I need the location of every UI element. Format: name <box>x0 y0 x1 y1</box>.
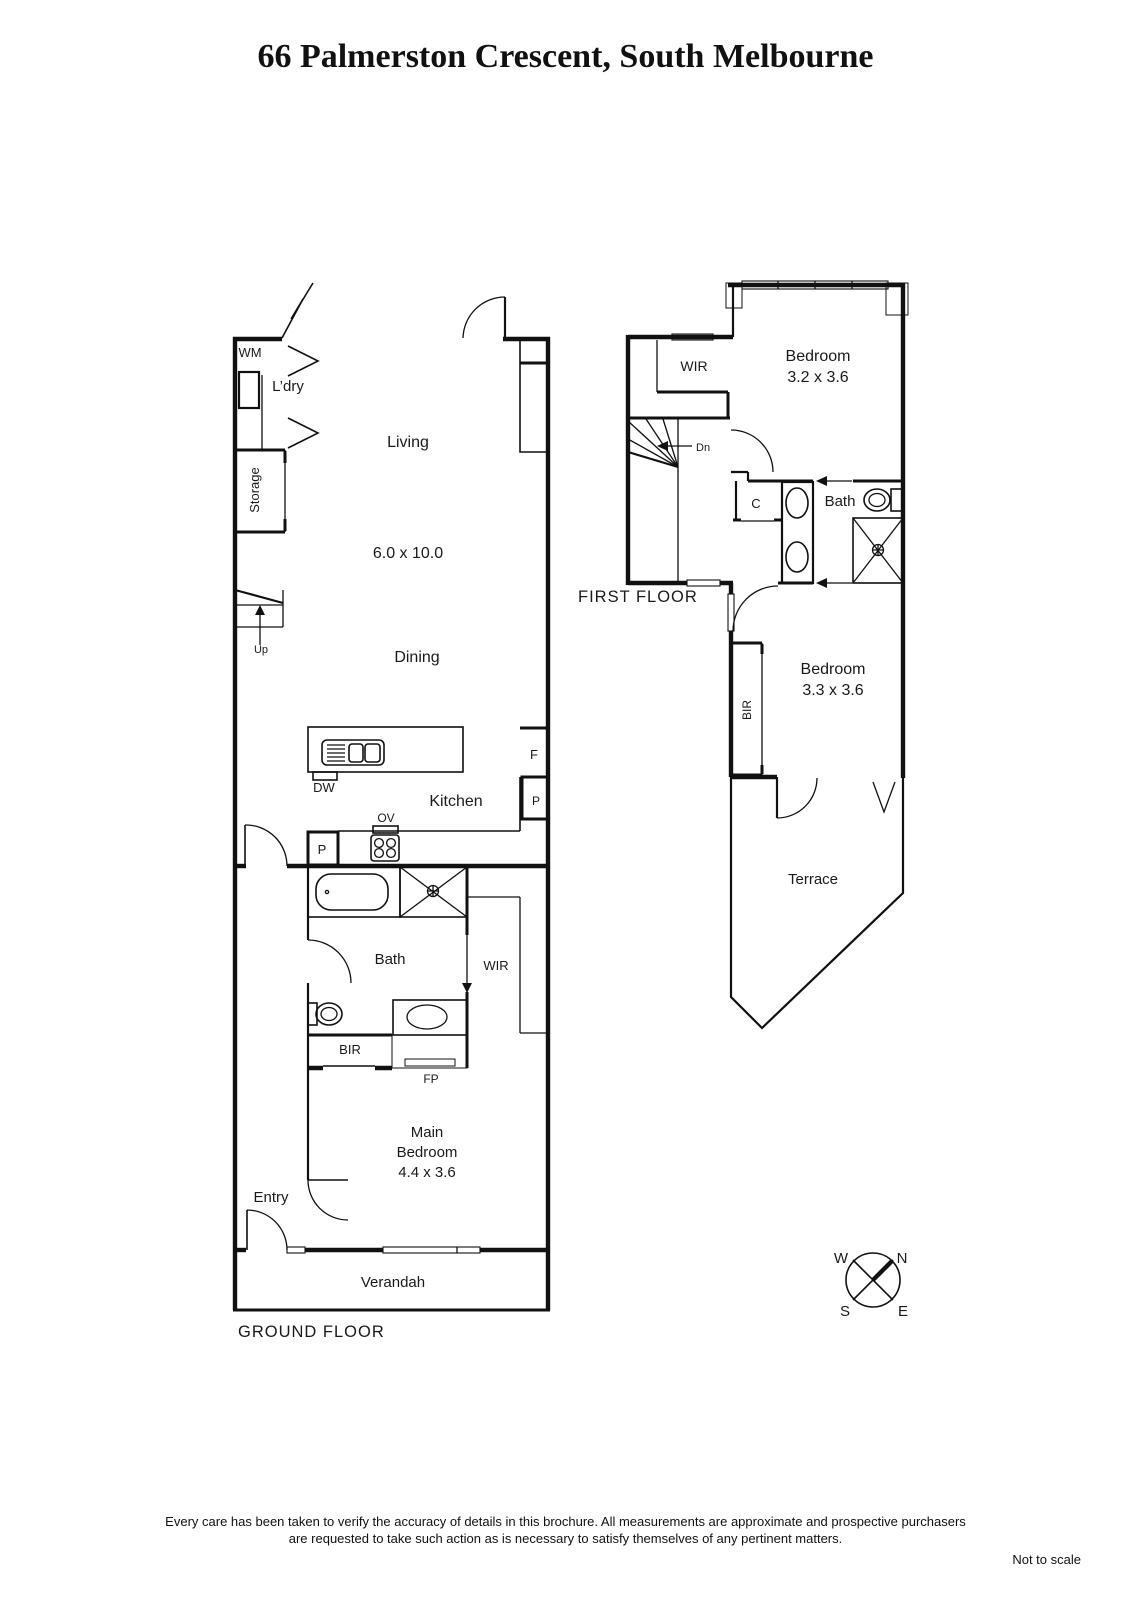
bathtub <box>308 867 400 917</box>
label-bedroom1: Bedroom <box>786 348 851 365</box>
toilet-first-floor <box>864 489 902 511</box>
label-kitchen: Kitchen <box>429 793 482 810</box>
label-ov: OV <box>377 811 394 825</box>
shower-first-floor <box>853 518 903 583</box>
label-main-bedroom-2: Bedroom <box>397 1144 458 1161</box>
label-first-floor: FIRST FLOOR <box>578 588 698 606</box>
label-bedroom2: Bedroom <box>801 661 866 678</box>
label-dn: Dn <box>696 442 710 454</box>
label-bedroom1-dims: 3.2 x 3.6 <box>787 369 848 386</box>
first-floor-plan: WIR Bedroom 3.2 x 3.6 Dn C Bath FIRST FL… <box>578 281 908 1028</box>
disclaimer-line2: are requested to take such action as is … <box>0 1531 1131 1546</box>
label-terrace: Terrace <box>788 871 838 888</box>
compass-rose: W N S E <box>834 1250 908 1320</box>
floorplan-page: 66 Palmerston Crescent, South Melbourne <box>0 0 1131 1600</box>
label-entry: Entry <box>253 1189 289 1206</box>
label-wir: WIR <box>483 958 508 973</box>
disclaimer-line1: Every care has been taken to verify the … <box>0 1514 1131 1529</box>
label-laundry: L’dry <box>272 378 304 395</box>
label-bath: Bath <box>375 951 406 968</box>
island-bench <box>308 727 463 780</box>
vanity <box>393 1000 467 1035</box>
label-pantry-left: P <box>318 842 327 857</box>
label-wir-ff: WIR <box>680 358 707 374</box>
label-closet: C <box>751 496 760 511</box>
not-to-scale-note: Not to scale <box>1012 1552 1081 1567</box>
compass-east: E <box>898 1303 908 1320</box>
label-fp: FP <box>423 1072 438 1086</box>
label-main-bedroom-1: Main <box>411 1124 444 1141</box>
label-bir: BIR <box>339 1042 361 1057</box>
label-bath-ff: Bath <box>825 493 856 510</box>
label-storage: Storage <box>247 467 262 513</box>
compass-north: N <box>897 1250 908 1267</box>
compass-south: S <box>840 1303 850 1320</box>
label-bedroom2-dims: 3.3 x 3.6 <box>802 682 863 699</box>
ground-floor-plan: WM L’dry Storage Up Living 6.0 x 10.0 Di… <box>233 283 550 1341</box>
label-dw: DW <box>313 780 335 795</box>
label-verandah: Verandah <box>361 1274 425 1291</box>
toilet <box>308 1003 342 1025</box>
label-ground-floor: GROUND FLOOR <box>238 1323 385 1341</box>
label-living-dims: 6.0 x 10.0 <box>373 545 443 562</box>
label-living: Living <box>387 434 429 451</box>
label-up: Up <box>254 644 268 656</box>
first-floor-walls <box>628 281 908 1028</box>
label-pantry-right: P <box>532 794 540 808</box>
label-dining: Dining <box>394 649 439 666</box>
label-main-bedroom-dims: 4.4 x 3.6 <box>398 1164 456 1181</box>
floorplan-drawing: WM L’dry Storage Up Living 6.0 x 10.0 Di… <box>0 0 1131 1600</box>
label-wm: WM <box>238 345 261 360</box>
label-fridge: F <box>530 747 538 762</box>
shower <box>400 867 467 917</box>
label-bir-ff: BIR <box>740 700 754 720</box>
compass-west: W <box>834 1250 849 1267</box>
